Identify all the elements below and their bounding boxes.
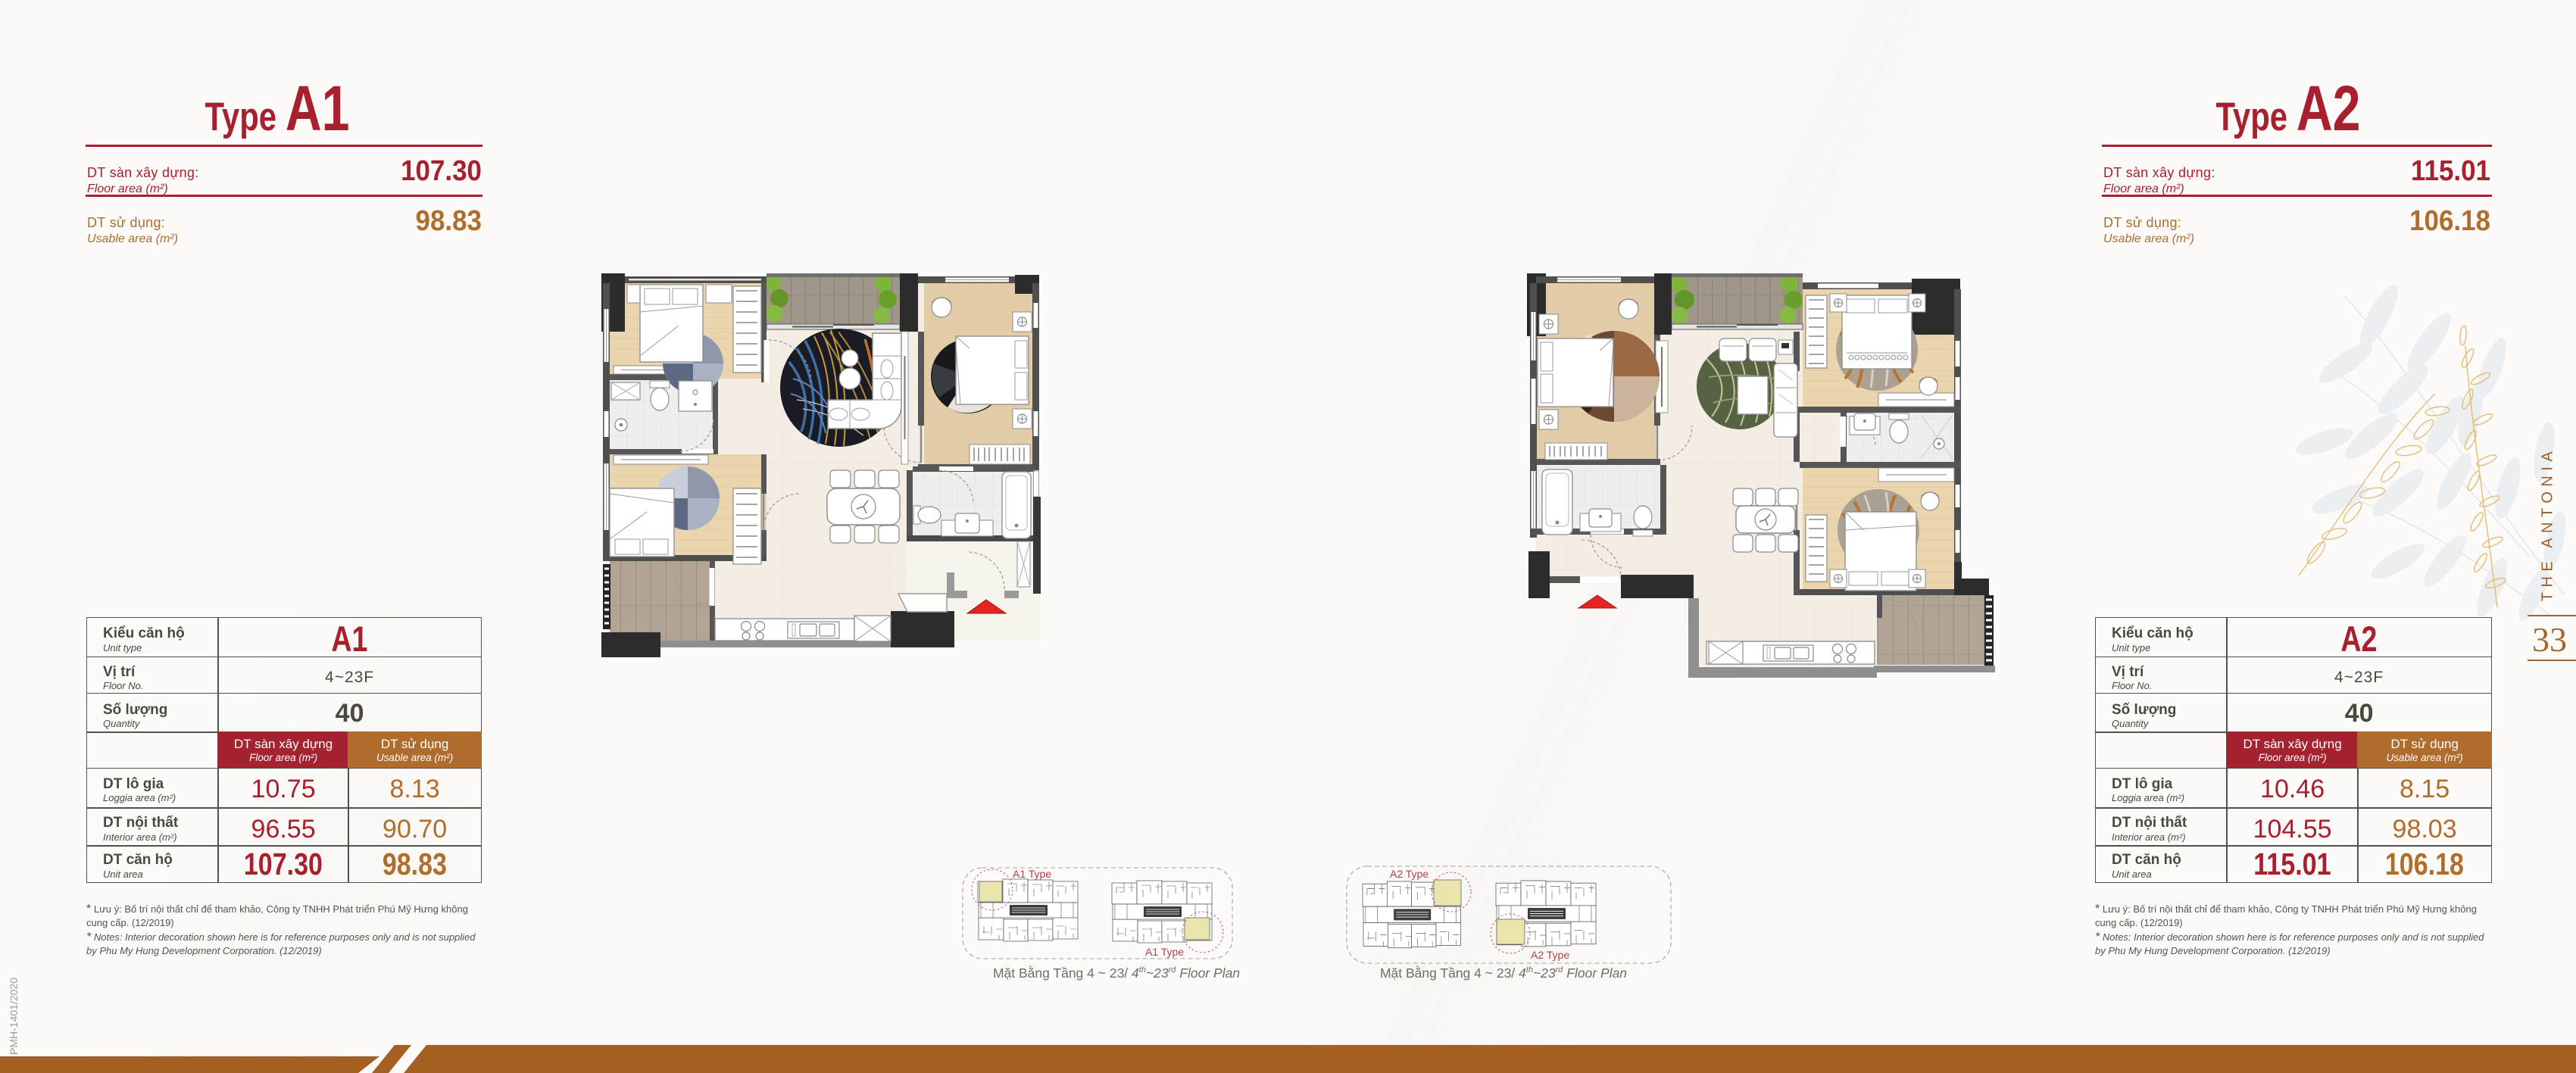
svg-text:A1 Type: A1 Type xyxy=(1145,946,1184,958)
svg-text:A2 Type: A2 Type xyxy=(1531,949,1569,961)
svg-text:A1 Type: A1 Type xyxy=(1013,868,1051,880)
svg-text:A2 Type: A2 Type xyxy=(1390,868,1429,880)
